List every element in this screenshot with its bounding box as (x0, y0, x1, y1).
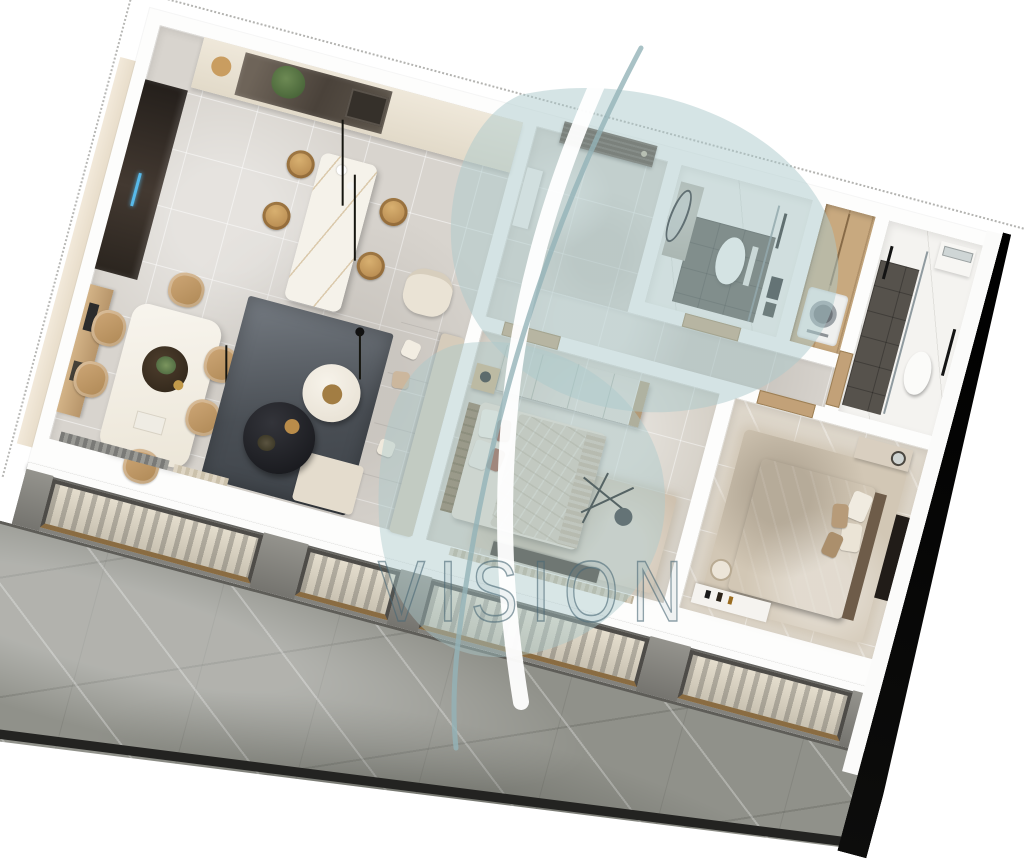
black-towel (766, 276, 783, 300)
rotated-plan-space (0, 8, 1000, 865)
cabinet-door-line (829, 214, 850, 286)
sofa-pillow (391, 371, 410, 390)
toilet (899, 349, 936, 398)
black-towel (762, 301, 776, 317)
floorplan-render-canvas: VISION (0, 0, 1024, 865)
pendant-light-rod (354, 175, 356, 261)
bed-1-pillow-rust (495, 419, 512, 443)
shower-fixture (775, 213, 787, 249)
pendant-light-rod (342, 120, 344, 206)
bed-2-pillow-tan (831, 503, 849, 528)
bathroom-1 (645, 165, 813, 337)
floor-lamp-rod (359, 333, 361, 379)
